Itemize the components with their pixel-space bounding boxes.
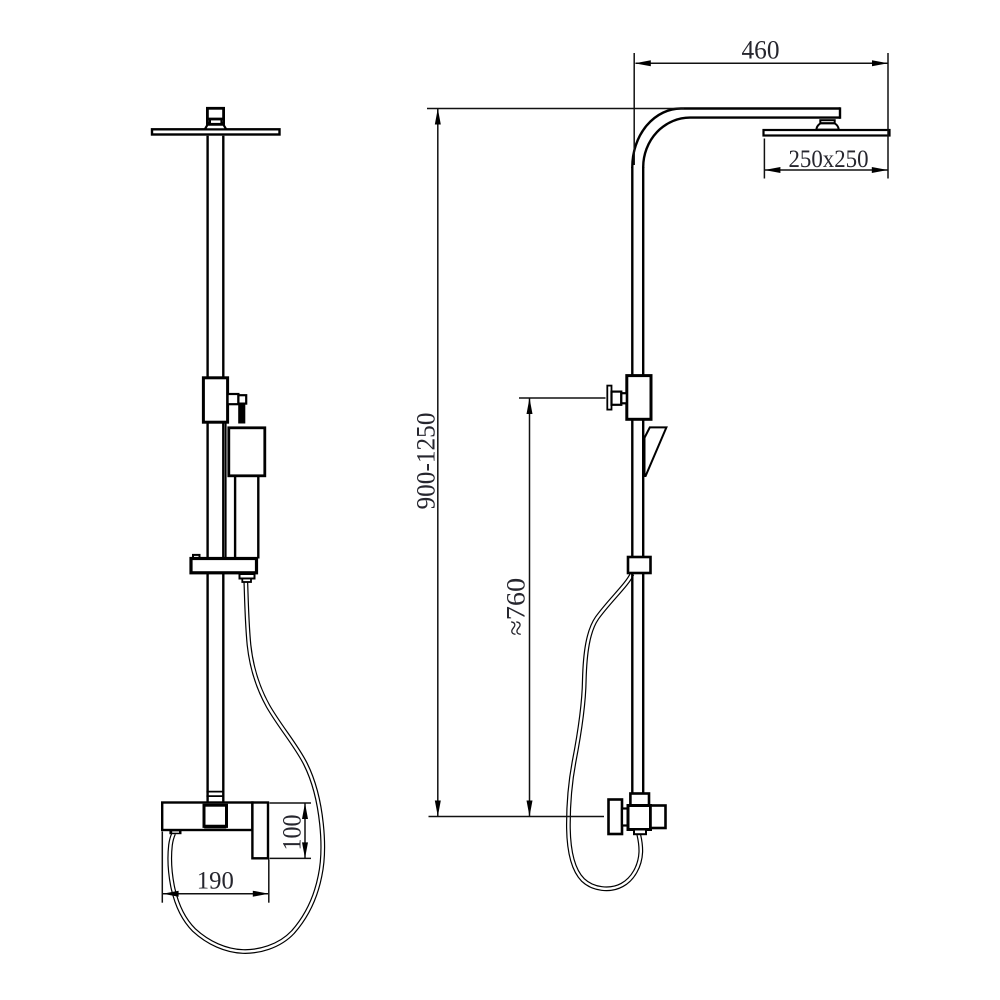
svg-text:250x250: 250x250: [789, 146, 869, 173]
svg-text:≈760: ≈760: [501, 578, 530, 636]
svg-text:900-1250: 900-1250: [411, 413, 440, 510]
svg-text:100: 100: [278, 815, 307, 851]
svg-text:460: 460: [742, 34, 780, 64]
svg-text:190: 190: [197, 865, 234, 894]
